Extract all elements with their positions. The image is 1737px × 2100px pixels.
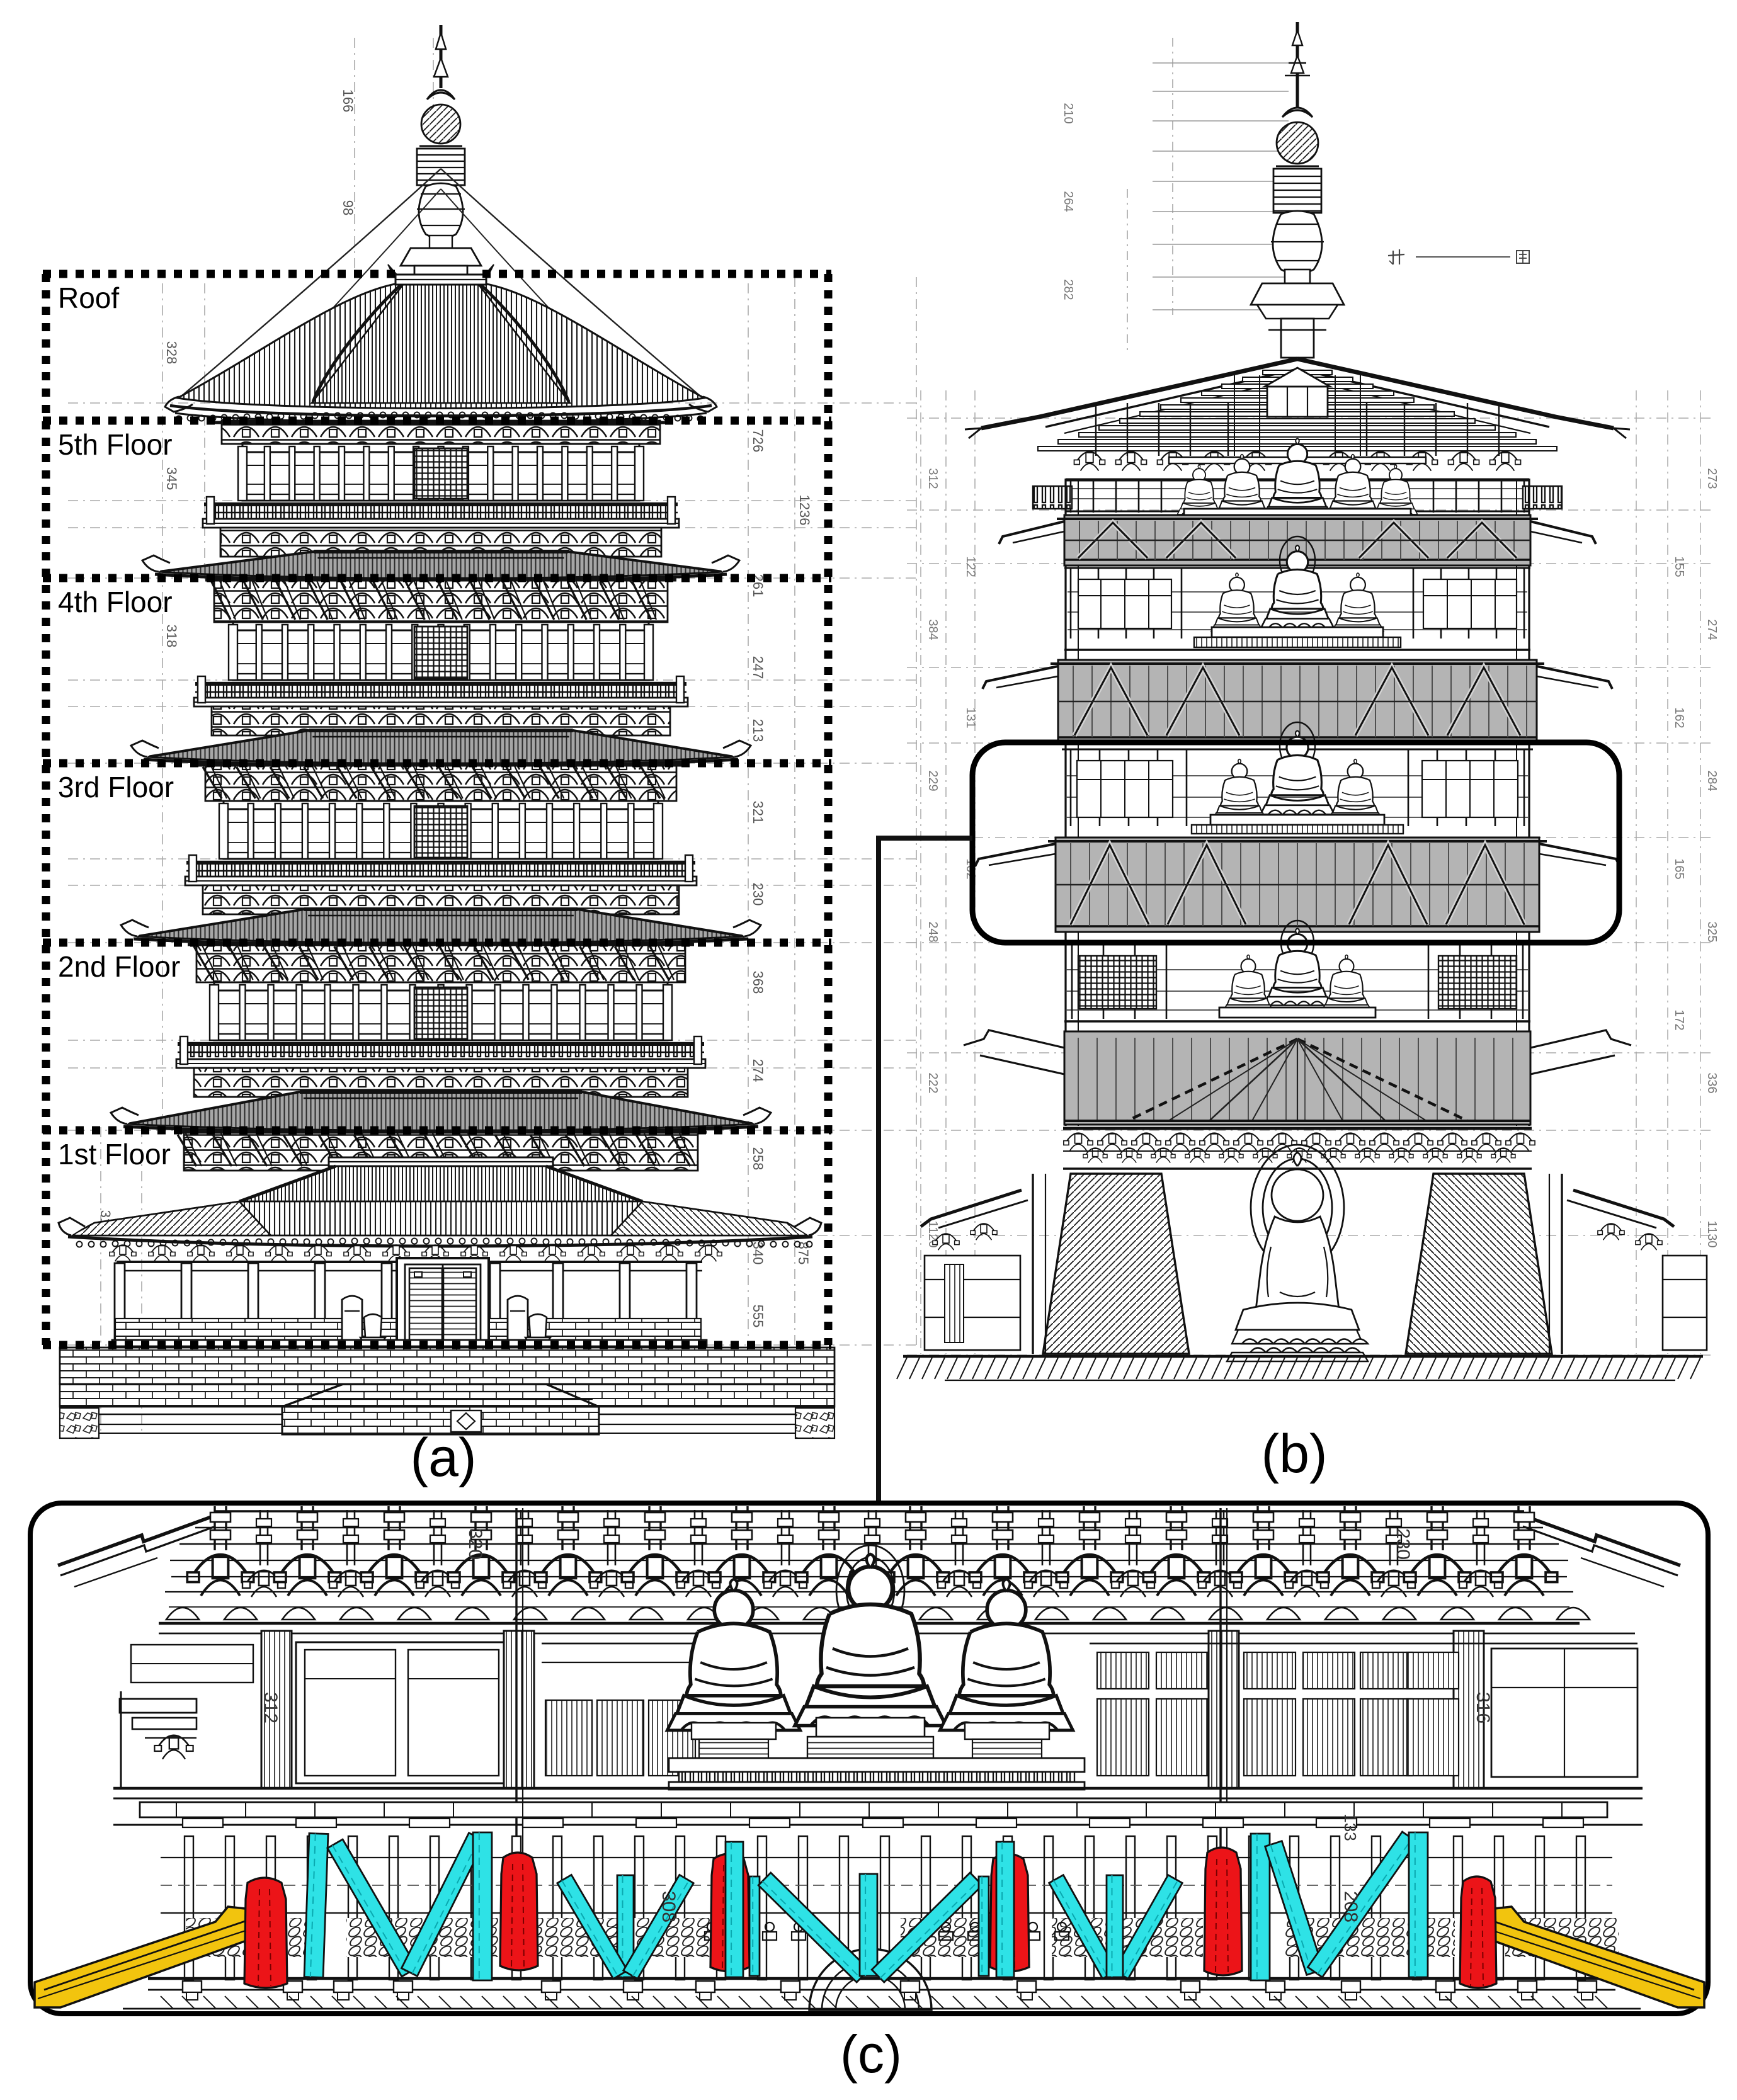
svg-text:(c): (c): [840, 2024, 902, 2084]
svg-text:368: 368: [750, 971, 766, 994]
svg-text:320: 320: [465, 1528, 486, 1560]
svg-text:248: 248: [926, 921, 940, 942]
svg-text:5th Floor: 5th Floor: [58, 428, 173, 461]
svg-text:230: 230: [750, 883, 766, 906]
svg-text:4th Floor: 4th Floor: [58, 586, 173, 618]
svg-text:(a): (a): [410, 1427, 476, 1488]
svg-text:Roof: Roof: [58, 281, 119, 314]
svg-text:328: 328: [164, 341, 179, 365]
svg-text:258: 258: [750, 1147, 766, 1171]
svg-text:273: 273: [1705, 468, 1719, 489]
svg-text:229: 229: [926, 770, 940, 791]
svg-text:384: 384: [926, 619, 940, 640]
svg-text:2nd Floor: 2nd Floor: [58, 950, 180, 983]
svg-text:(b): (b): [1261, 1424, 1327, 1484]
svg-text:316: 316: [1472, 1692, 1493, 1723]
svg-text:210: 210: [1061, 103, 1075, 123]
svg-text:247: 247: [750, 656, 766, 679]
svg-text:172: 172: [1672, 1009, 1686, 1030]
svg-text:325: 325: [1705, 921, 1719, 942]
svg-text:336: 336: [1705, 1072, 1719, 1093]
svg-text:284: 284: [1705, 770, 1719, 791]
svg-text:312: 312: [260, 1692, 281, 1723]
svg-text:165: 165: [1672, 858, 1686, 879]
svg-text:1130: 1130: [1705, 1220, 1719, 1247]
svg-text:1236: 1236: [797, 495, 812, 526]
svg-text:213: 213: [750, 719, 766, 742]
svg-text:3rd Floor: 3rd Floor: [58, 771, 174, 803]
svg-text:264: 264: [1061, 191, 1075, 212]
svg-text:222: 222: [926, 1072, 940, 1093]
svg-text:345: 345: [164, 467, 179, 491]
svg-text:230: 230: [1392, 1528, 1413, 1560]
svg-text:1st Floor: 1st Floor: [58, 1138, 171, 1171]
svg-text:321: 321: [750, 801, 766, 824]
svg-text:274: 274: [1705, 619, 1719, 640]
svg-text:162: 162: [1672, 707, 1686, 728]
svg-text:208: 208: [1340, 1891, 1361, 1922]
svg-text:282: 282: [1061, 279, 1075, 300]
svg-text:312: 312: [926, 468, 940, 489]
svg-text:726: 726: [750, 429, 766, 453]
svg-text:555: 555: [750, 1305, 766, 1328]
svg-text:875: 875: [795, 1242, 811, 1265]
svg-text:308: 308: [658, 1891, 679, 1922]
svg-text:133: 133: [1341, 1813, 1360, 1841]
svg-text:318: 318: [164, 625, 179, 648]
svg-text:122: 122: [964, 556, 977, 577]
svg-text:155: 155: [1672, 556, 1686, 577]
svg-text:274: 274: [750, 1059, 766, 1082]
svg-text:166: 166: [340, 89, 356, 113]
svg-text:131: 131: [964, 707, 977, 728]
svg-text:98: 98: [340, 200, 356, 215]
